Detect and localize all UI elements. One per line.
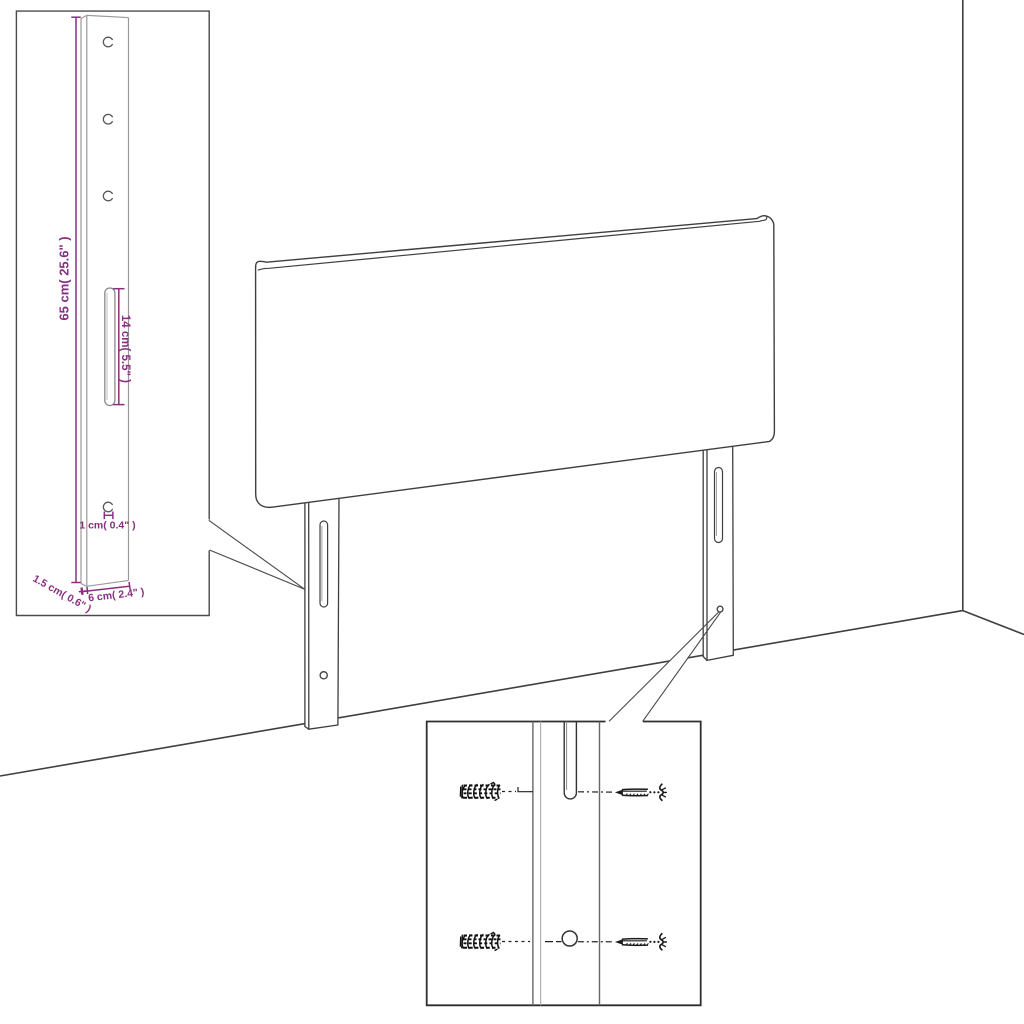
svg-text:14 cm( 5.5" ): 14 cm( 5.5" ) — [119, 315, 131, 383]
svg-text:65 cm( 25.6" ): 65 cm( 25.6" ) — [57, 236, 72, 320]
svg-text:1 cm( 0.4" ): 1 cm( 0.4" ) — [79, 519, 135, 531]
